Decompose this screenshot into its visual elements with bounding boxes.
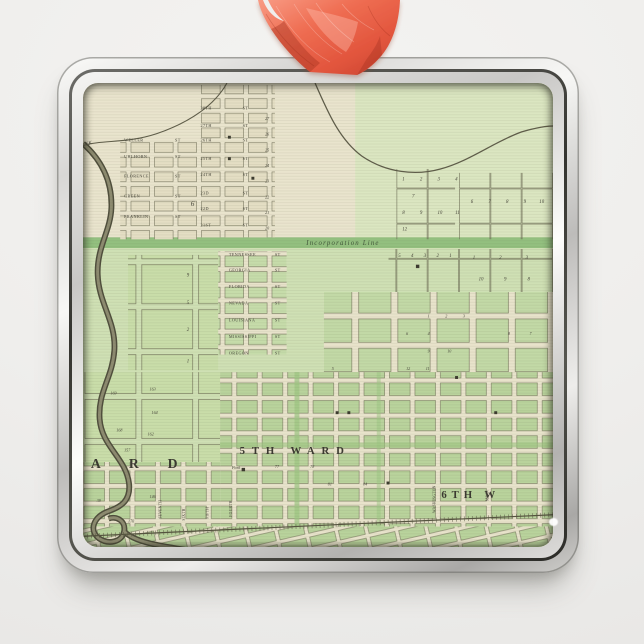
square-metal-ornament[interactable]: Incorporation Line EK A R D 5TH WARD 6TH… <box>57 57 579 573</box>
ornament-ribbon <box>246 0 416 84</box>
antique-plat-map: Incorporation Line EK A R D 5TH WARD 6TH… <box>83 83 553 547</box>
frame-specular-highlight <box>549 518 558 526</box>
map-print-panel: Incorporation Line EK A R D 5TH WARD 6TH… <box>83 83 553 547</box>
frame-groove: Incorporation Line EK A R D 5TH WARD 6TH… <box>69 69 567 561</box>
ribbon-graphic <box>246 0 416 84</box>
engraving-texture <box>83 83 553 547</box>
ribbon-shape <box>258 0 400 75</box>
product-photo-scene: Incorporation Line EK A R D 5TH WARD 6TH… <box>0 0 644 644</box>
frame-inner-lip: Incorporation Line EK A R D 5TH WARD 6TH… <box>72 72 564 558</box>
